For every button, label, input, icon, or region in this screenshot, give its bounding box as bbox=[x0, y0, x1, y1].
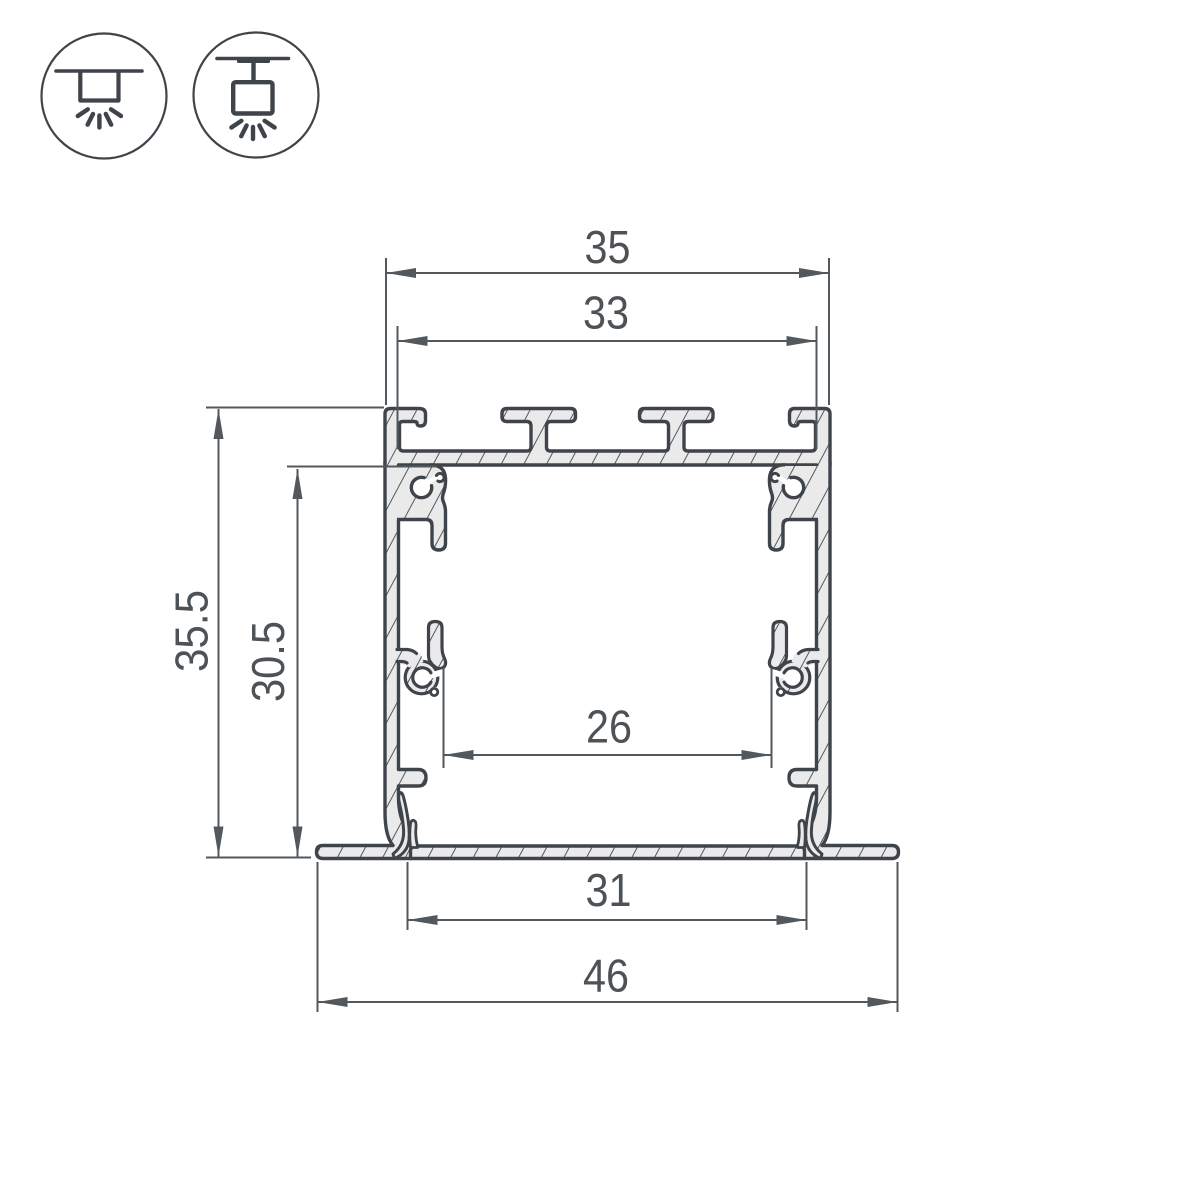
svg-text:46: 46 bbox=[583, 950, 629, 1002]
svg-text:35.5: 35.5 bbox=[166, 590, 218, 672]
svg-text:33: 33 bbox=[583, 287, 629, 339]
svg-text:35: 35 bbox=[585, 221, 631, 273]
svg-text:26: 26 bbox=[586, 701, 632, 753]
svg-text:31: 31 bbox=[586, 864, 632, 916]
svg-text:30.5: 30.5 bbox=[242, 621, 294, 702]
